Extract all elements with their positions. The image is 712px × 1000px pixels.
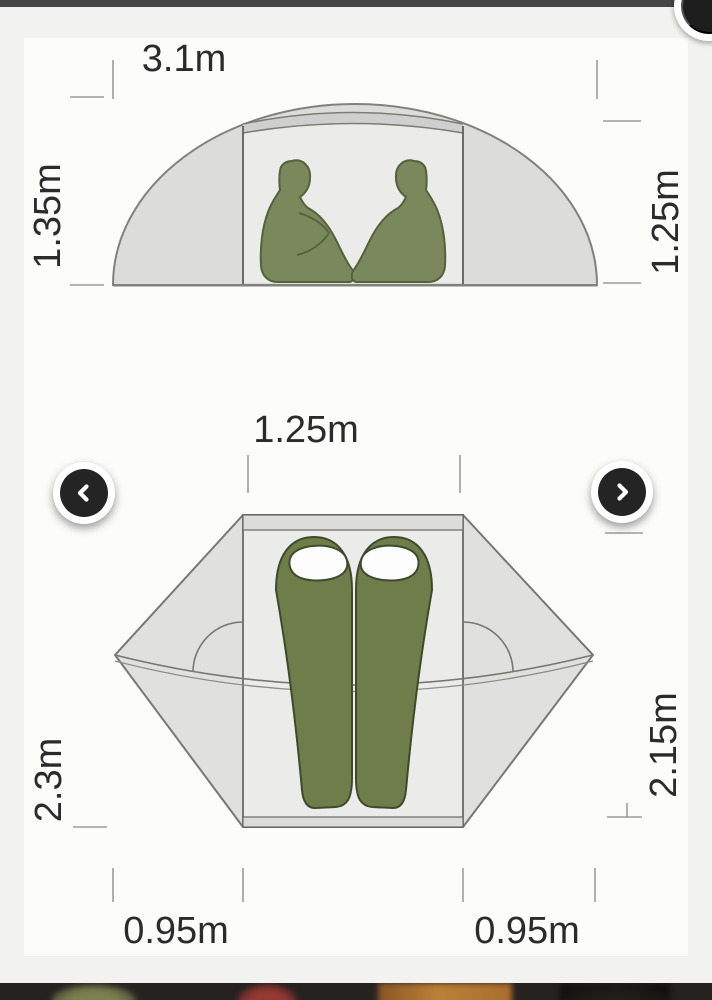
- dimension-label-inner-width: 1.25m: [253, 411, 359, 449]
- orange-photo-thumbnail[interactable]: [378, 983, 512, 1000]
- dark-photo-thumbnail[interactable]: [560, 983, 670, 1000]
- red-tent-thumbnail[interactable]: [238, 985, 296, 1000]
- carousel-image[interactable]: [24, 38, 688, 956]
- carousel-next-button[interactable]: [591, 461, 653, 523]
- dimension-label-inner-length: 2.15m: [645, 692, 683, 798]
- green-tent-thumbnail[interactable]: [52, 985, 136, 1000]
- dimension-label-peak-height: 1.35m: [29, 163, 67, 269]
- thumbnail-strip: [0, 983, 712, 1000]
- dimension-label-total-length: 2.3m: [30, 738, 68, 822]
- dimension-label-right-vestibule: 0.95m: [474, 912, 580, 950]
- dimension-label-inner-height: 1.25m: [647, 169, 685, 275]
- top-bar: [0, 0, 712, 7]
- product-image-carousel-screen: 3.1m 1.35m 1.25m 1.25m 2.3m 2.15m 0.95m …: [0, 0, 712, 1000]
- chevron-right-icon: [598, 468, 646, 516]
- carousel-prev-button[interactable]: [53, 462, 115, 524]
- chevron-left-icon: [60, 469, 108, 517]
- dimension-label-tent-width: 3.1m: [142, 40, 226, 78]
- dimension-label-left-vestibule: 0.95m: [123, 912, 229, 950]
